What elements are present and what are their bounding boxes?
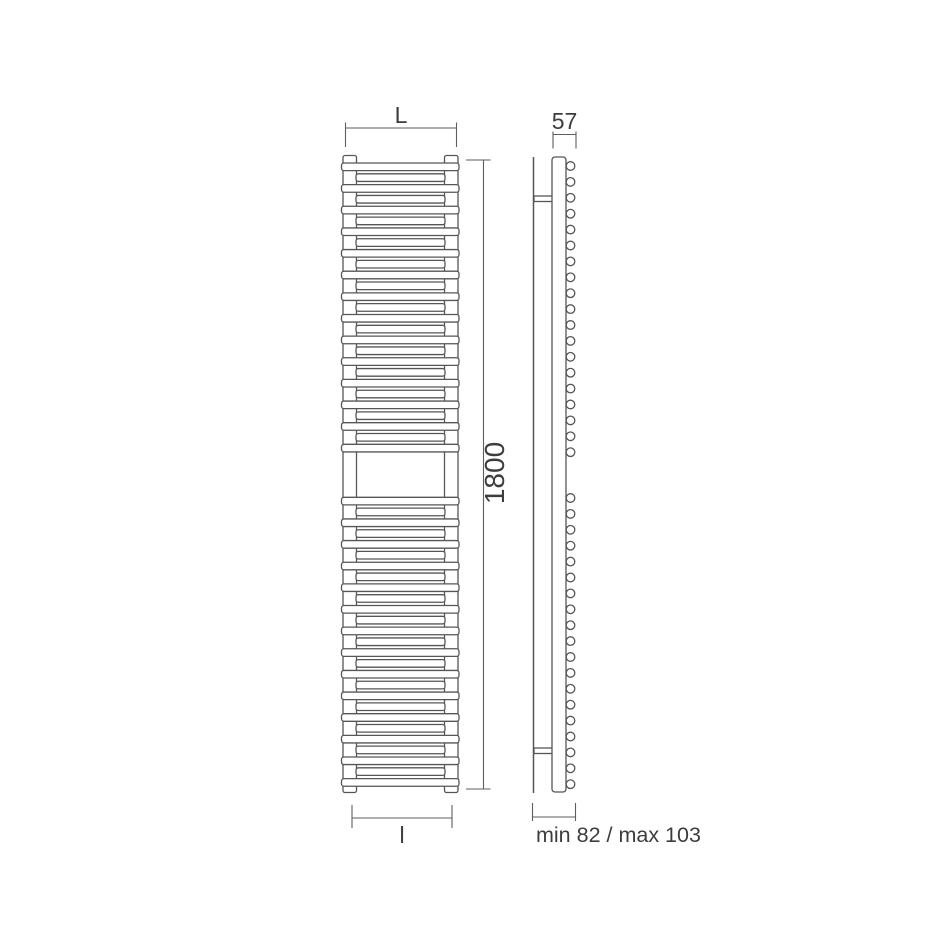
- side-tube-end-circle: [566, 384, 575, 393]
- side-tube-end-circle: [566, 257, 575, 266]
- radiator-tube-short: [356, 369, 445, 377]
- radiator-tube-long: [342, 692, 460, 700]
- radiator-tube-long: [342, 336, 460, 344]
- radiator-tube-long: [342, 606, 460, 614]
- radiator-tube-long: [342, 584, 460, 592]
- radiator-tube-short: [356, 616, 445, 624]
- side-tube-end-circle: [566, 526, 575, 535]
- side-tube-end-circle: [566, 273, 575, 282]
- side-tube-end-circle: [566, 432, 575, 441]
- radiator-tube-long: [342, 562, 460, 570]
- radiator-tube-long: [342, 401, 460, 409]
- radiator-tube-short: [356, 412, 445, 420]
- side-tube-end-circle: [566, 557, 575, 566]
- radiator-tube-short: [356, 703, 445, 711]
- side-tube-end-circle: [566, 637, 575, 646]
- side-tube-end-circle: [566, 416, 575, 425]
- side-tube-end-circle: [566, 162, 575, 171]
- radiator-tube-short: [356, 217, 445, 225]
- side-tube-end-circle: [566, 732, 575, 741]
- radiator-tube-long: [342, 779, 460, 787]
- radiator-tube-short: [356, 725, 445, 733]
- side-tube-end-circle: [566, 605, 575, 614]
- radiator-tube-short: [356, 434, 445, 442]
- drawing-svg: L 1800 l 57 min 82 / max 103: [0, 0, 950, 950]
- dim-width: L: [346, 102, 457, 147]
- radiator-tube-short: [356, 195, 445, 203]
- side-tube-end-circle: [566, 653, 575, 662]
- side-tube-end-circle: [566, 716, 575, 725]
- radiator-tube-short: [356, 768, 445, 776]
- side-tube-ends-top-section: [566, 162, 575, 457]
- radiator-tube-long: [342, 358, 460, 366]
- side-tube-end-circle: [566, 178, 575, 187]
- radiator-tube-short: [356, 282, 445, 290]
- side-tube-end-circle: [566, 400, 575, 409]
- side-tube-end-circle: [566, 448, 575, 457]
- side-tube-end-circle: [566, 748, 575, 757]
- radiator-tube-short: [356, 390, 445, 398]
- side-wall-bracket-top: [534, 196, 553, 202]
- radiator-tube-long: [342, 497, 460, 505]
- side-tube-end-circle: [566, 764, 575, 773]
- radiator-tube-long: [342, 519, 460, 527]
- dim-depth-label: 57: [552, 108, 578, 134]
- dim-width-label: L: [395, 102, 408, 128]
- front-view: [342, 156, 460, 793]
- radiator-tube-short: [356, 508, 445, 516]
- radiator-tube-short: [356, 551, 445, 559]
- radiator-tube-short: [356, 347, 445, 355]
- side-tube-end-circle: [566, 573, 575, 582]
- radiator-tube-long: [342, 163, 460, 171]
- radiator-tube-short: [356, 746, 445, 754]
- radiator-tube-long: [342, 423, 460, 431]
- radiator-tube-short: [356, 260, 445, 268]
- radiator-tube-long: [342, 379, 460, 387]
- dim-wall-distance-label: min 82 / max 103: [536, 823, 701, 847]
- radiator-tube-long: [342, 757, 460, 765]
- side-tube-end-circle: [566, 589, 575, 598]
- side-tube-end-circle: [566, 194, 575, 203]
- radiator-tube-long: [342, 714, 460, 722]
- side-tube-end-circle: [566, 368, 575, 377]
- front-tubes-bottom-section: [342, 497, 460, 786]
- radiator-tube-long: [342, 185, 460, 193]
- side-wall-bracket-bottom: [534, 748, 553, 754]
- side-tube-end-circle: [566, 780, 575, 789]
- side-tube-end-circle: [566, 305, 575, 314]
- dim-height-label: 1800: [479, 442, 510, 504]
- side-tube-ends-bottom-section: [566, 494, 575, 789]
- side-tube-end-circle: [566, 669, 575, 678]
- side-tube-end-circle: [566, 225, 575, 234]
- side-tube-end-circle: [566, 510, 575, 519]
- radiator-tube-short: [356, 304, 445, 312]
- radiator-tube-long: [342, 206, 460, 214]
- side-tube-end-circle: [566, 241, 575, 250]
- side-tube-end-circle: [566, 700, 575, 709]
- dim-axle-distance: l: [352, 805, 452, 848]
- radiator-tube-short: [356, 530, 445, 538]
- radiator-tube-long: [342, 250, 460, 258]
- radiator-tube-short: [356, 595, 445, 603]
- radiator-tube-long: [342, 228, 460, 236]
- side-tube-end-circle: [566, 337, 575, 346]
- radiator-tube-long: [342, 649, 460, 657]
- radiator-tube-short: [356, 660, 445, 668]
- side-tube-end-circle: [566, 621, 575, 630]
- side-collector-panel: [552, 157, 566, 792]
- dim-height: 1800: [466, 160, 510, 789]
- side-tube-end-circle: [566, 289, 575, 298]
- radiator-tube-short: [356, 174, 445, 182]
- radiator-tube-long: [342, 271, 460, 279]
- radiator-tube-short: [356, 573, 445, 581]
- dim-axle-label: l: [399, 822, 404, 848]
- radiator-tube-long: [342, 670, 460, 678]
- side-tube-end-circle: [566, 353, 575, 362]
- side-tube-end-circle: [566, 209, 575, 218]
- dim-depth: 57: [552, 108, 578, 149]
- radiator-dimension-drawing: L 1800 l 57 min 82 / max 103: [0, 0, 950, 950]
- radiator-tube-short: [356, 681, 445, 689]
- radiator-tube-long: [342, 627, 460, 635]
- side-view: [534, 157, 575, 793]
- radiator-tube-short: [356, 239, 445, 247]
- radiator-tube-long: [342, 444, 460, 452]
- radiator-tube-short: [356, 638, 445, 646]
- radiator-tube-long: [342, 293, 460, 301]
- radiator-tube-long: [342, 735, 460, 743]
- radiator-tube-long: [342, 541, 460, 549]
- side-tube-end-circle: [566, 321, 575, 330]
- front-tubes-top-section: [342, 163, 460, 452]
- side-tube-end-circle: [566, 685, 575, 694]
- radiator-tube-short: [356, 325, 445, 333]
- side-tube-end-circle: [566, 541, 575, 550]
- dim-wall-distance: min 82 / max 103: [533, 803, 701, 847]
- side-tube-end-circle: [566, 494, 575, 503]
- radiator-tube-long: [342, 314, 460, 322]
